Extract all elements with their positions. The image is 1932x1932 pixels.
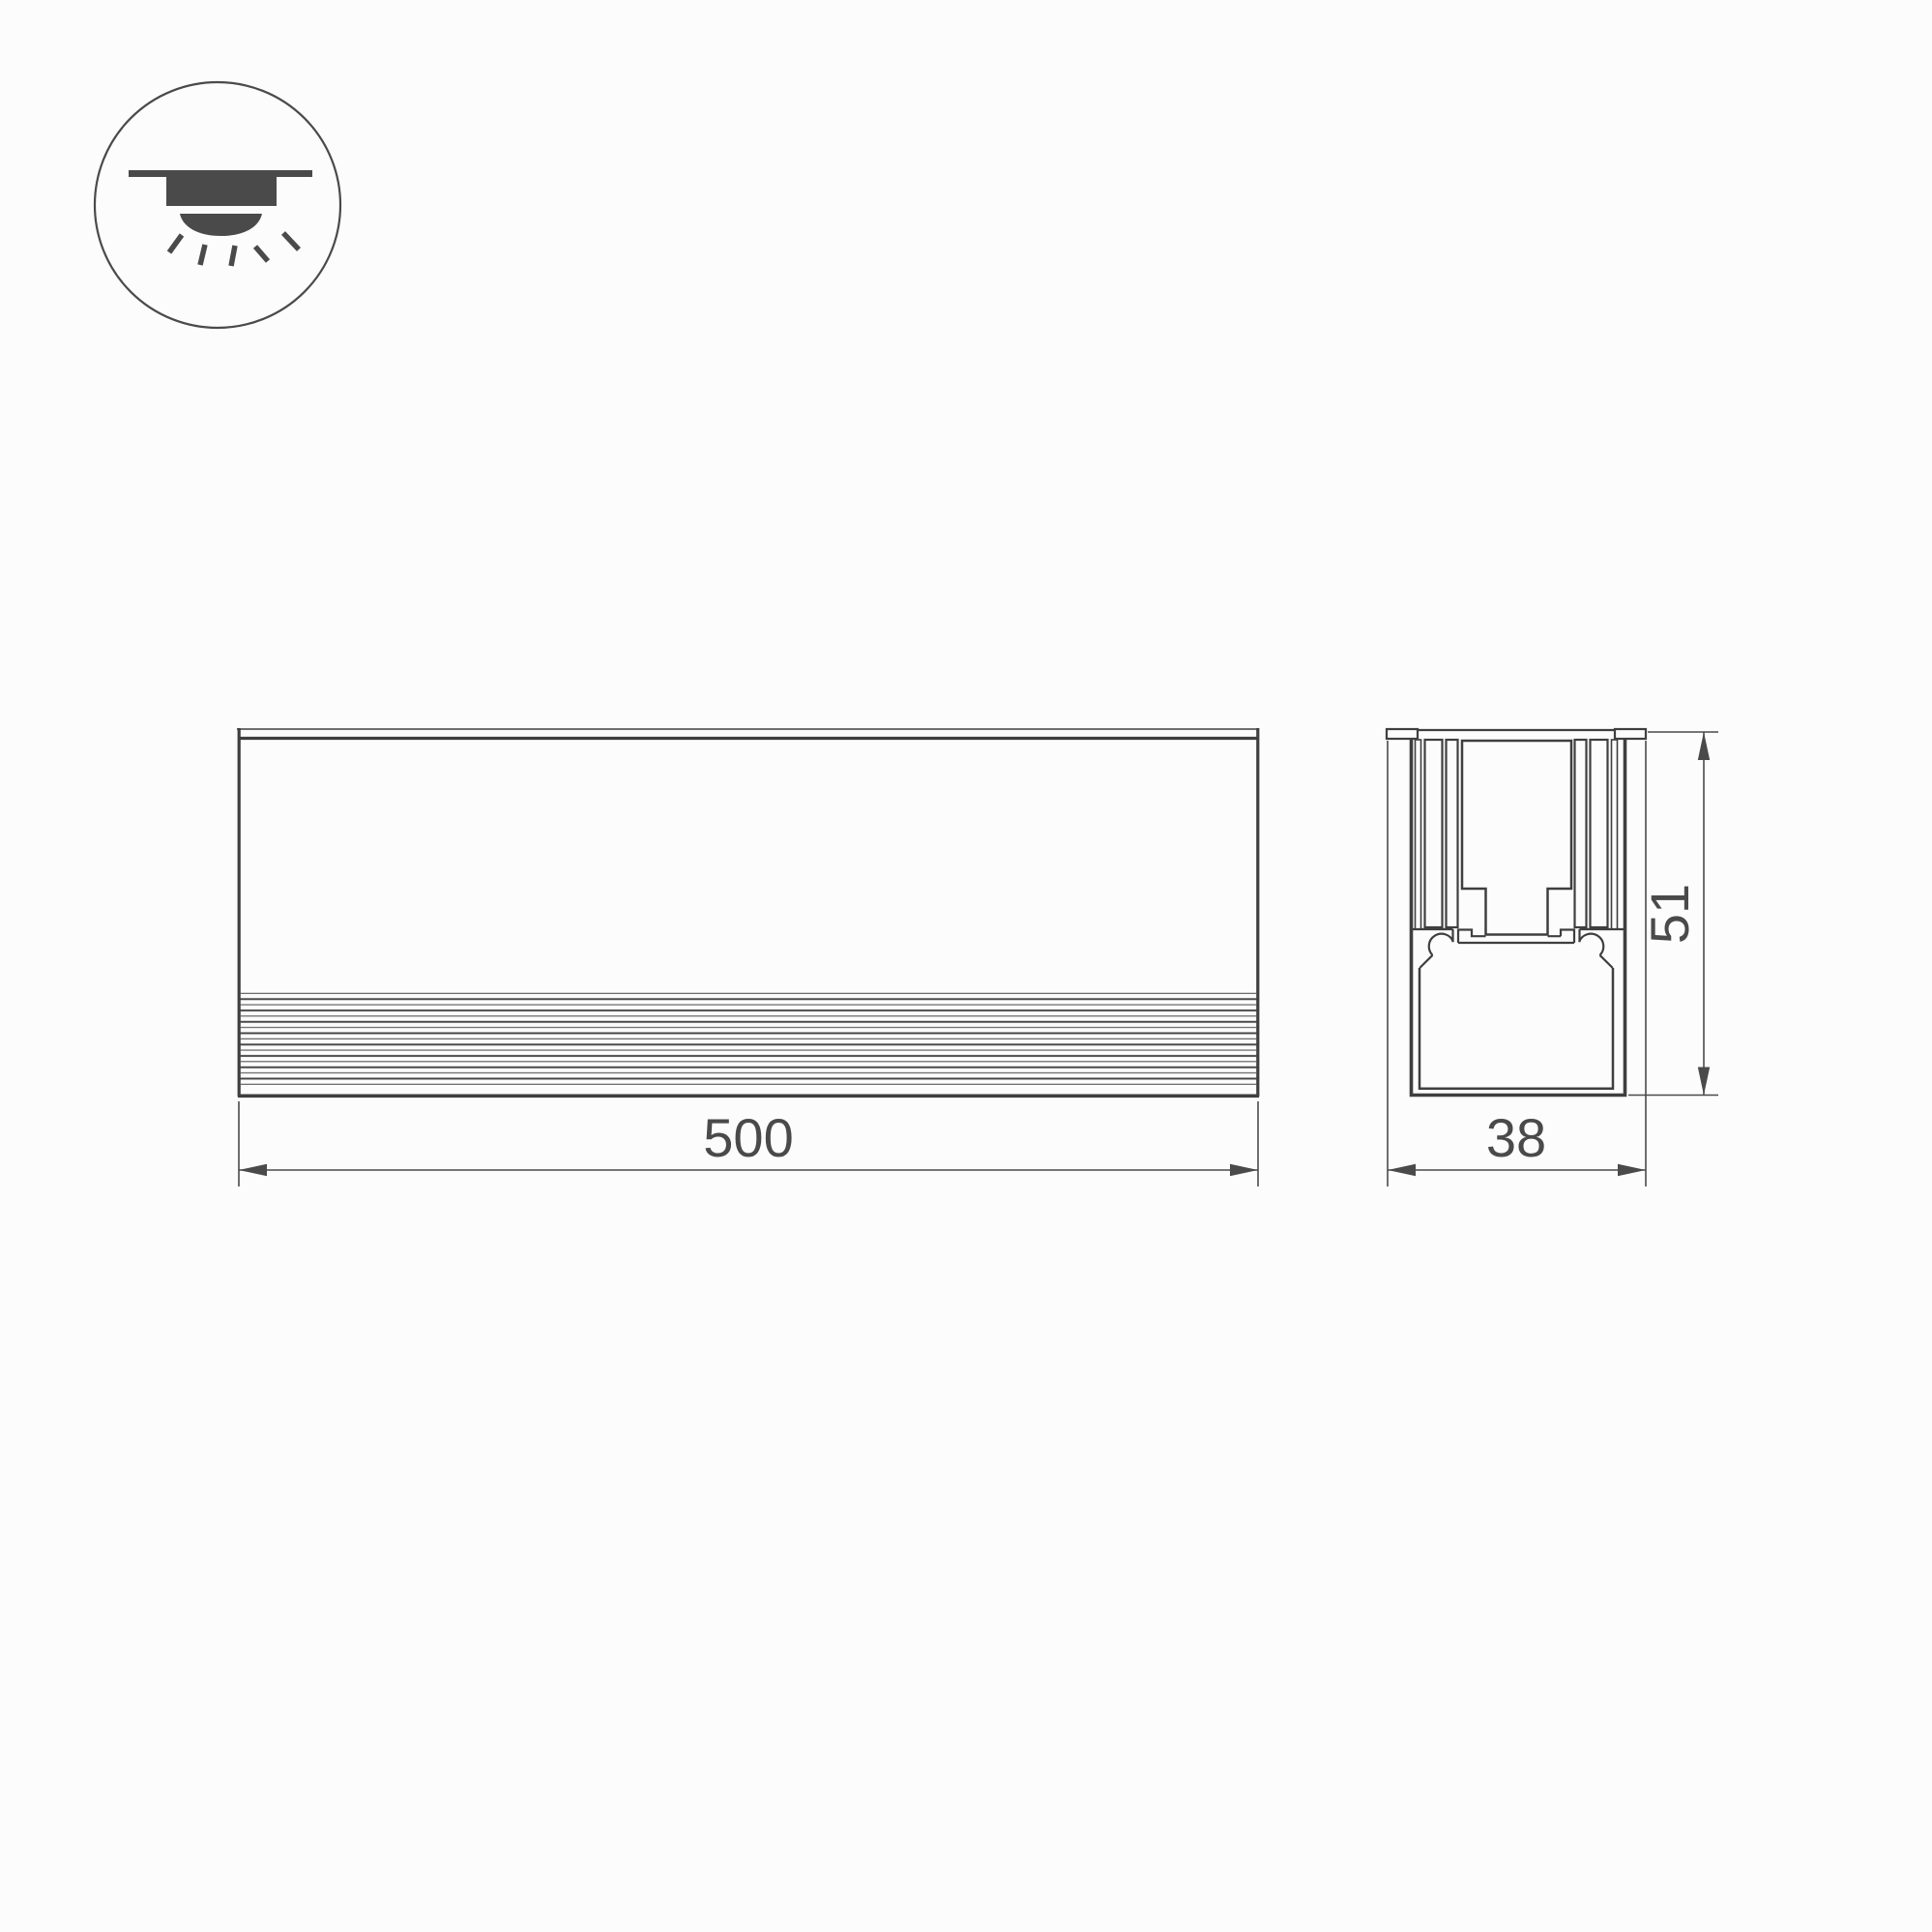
front-view bbox=[237, 728, 1259, 1097]
dim-width-value: 38 bbox=[1486, 1107, 1546, 1168]
keyhole-notch-right bbox=[1579, 934, 1603, 955]
section-center-channel bbox=[1462, 741, 1571, 935]
arrowhead-top bbox=[1698, 732, 1710, 760]
dim-height-value: 51 bbox=[1639, 884, 1700, 944]
ceiling-line bbox=[129, 170, 312, 177]
keyhole-notch-left bbox=[1429, 934, 1453, 955]
section-view bbox=[1387, 729, 1646, 1096]
arrowhead-left bbox=[239, 1164, 267, 1176]
drawing-canvas: 500 bbox=[0, 0, 1932, 1932]
dim-height: 51 bbox=[1628, 732, 1718, 1096]
dim-length: 500 bbox=[239, 1101, 1258, 1186]
section-outer-body bbox=[1412, 739, 1625, 1096]
section-left-lip bbox=[1387, 729, 1418, 739]
light-rays-icon bbox=[169, 233, 299, 266]
section-right-lip bbox=[1615, 729, 1646, 739]
section-inner-chamber bbox=[1420, 968, 1613, 1089]
arrowhead-bottom bbox=[1698, 1068, 1710, 1096]
dim-length-value: 500 bbox=[703, 1107, 793, 1168]
recessed-housing bbox=[166, 177, 277, 206]
arrowhead-right bbox=[1230, 1164, 1258, 1176]
diffuser-rib-band bbox=[240, 993, 1257, 1086]
technical-drawing-page: 500 bbox=[0, 0, 1932, 1932]
section-wall-slots bbox=[1416, 740, 1618, 929]
mount-type-icon bbox=[95, 82, 340, 328]
arrowhead-right bbox=[1618, 1164, 1646, 1176]
light-dome bbox=[180, 214, 262, 236]
arrowhead-left bbox=[1388, 1164, 1416, 1176]
